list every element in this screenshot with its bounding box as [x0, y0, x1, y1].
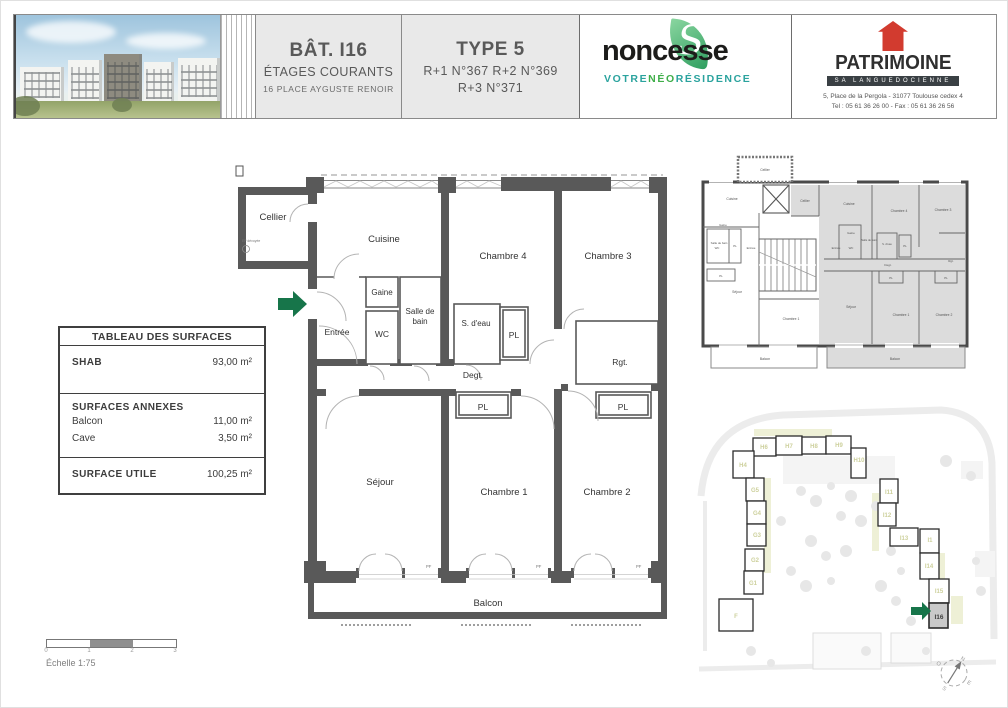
building-address: 16 PLACE AYGUSTE RENOIR — [263, 84, 394, 94]
building-id-cell: BÂT. I16 ÉTAGES COURANTS 16 PLACE AYGUST… — [256, 15, 402, 118]
compass-icon: N E S O — [925, 646, 981, 701]
site-label: H9 — [835, 443, 843, 449]
site-label: I14 — [925, 564, 934, 570]
pf-label: PF — [426, 564, 432, 569]
site-label: G2 — [751, 558, 760, 564]
building-title: BÂT. I16 — [290, 40, 368, 62]
room-label-gaine: Gaine — [371, 288, 393, 297]
site-label: I11 — [885, 490, 894, 496]
site-label: I1 — [927, 538, 933, 544]
shrub — [112, 98, 132, 112]
pf-label: PF — [636, 564, 642, 569]
patrimoine-wordmark: PATRIMOINE — [835, 52, 951, 75]
mini-label: PL — [903, 244, 907, 248]
scale-tick: 2 — [130, 648, 133, 654]
plan-sheet: BÂT. I16 ÉTAGES COURANTS 16 PLACE AYGUST… — [0, 0, 1008, 708]
patrimoine-subtitle: SA LANGUEDOCIENNE — [827, 76, 960, 86]
compass-s: S — [941, 686, 948, 693]
scale-bar: 0 1 2 3 Échelle 1:75 — [46, 639, 186, 668]
building-floors: ÉTAGES COURANTS — [264, 65, 393, 79]
scale-ticks: 0 1 2 3 — [46, 648, 186, 656]
mini-label: Chambre 3 — [935, 208, 952, 212]
mini-label: Entrée — [832, 246, 841, 250]
mini-label: Rgt. — [948, 259, 954, 263]
room-label-entree: Entrée — [324, 327, 349, 337]
scale-label: Échelle 1:75 — [46, 658, 186, 668]
room-label-s-deau: S. d'eau — [461, 319, 490, 328]
house-icon — [878, 21, 908, 51]
room-label-wc: WC — [375, 329, 389, 339]
mini-label: Séjour — [846, 305, 857, 309]
table-row: SURFACE UTILE 100,25 m² — [72, 466, 252, 483]
mini-label: Cuisine — [726, 197, 737, 201]
pf-label: PF — [536, 564, 542, 569]
tagline-residence: RÉSIDENCE — [676, 73, 752, 85]
mini-label: Balcon — [890, 357, 900, 361]
closet-boxes — [366, 277, 658, 418]
room-label-chambre1: Chambre 1 — [481, 487, 528, 498]
site-label: I13 — [900, 536, 909, 542]
room-label-pl: PL — [478, 402, 489, 412]
room-label-degt: Degt. — [463, 370, 483, 380]
building-block — [178, 58, 220, 101]
site-label: G4 — [753, 511, 762, 517]
mini-label: Chambre 1 — [893, 313, 910, 317]
main-floor-plan: EP dévoyée Cellier Cuisine Chambre 4 Cha… — [226, 164, 676, 661]
compass-e: E — [966, 680, 973, 687]
mini-label: WC — [849, 246, 854, 250]
site-label: H8 — [810, 444, 818, 450]
tagline-votre: VOTRE — [604, 73, 648, 85]
cave-label: Cave — [72, 430, 95, 447]
balcon-label: Balcon — [72, 413, 103, 430]
plan-note: EP dévoyée — [242, 239, 260, 243]
mini-label: Cuisine — [843, 202, 854, 206]
building-block — [144, 62, 174, 103]
site-label: G5 — [751, 488, 760, 494]
table-row: Balcon 11,00 m² — [72, 413, 252, 430]
mini-label: Gaine — [719, 223, 727, 227]
annexes-label: SURFACES ANNEXES — [72, 402, 252, 413]
mini-label: Séjour — [732, 290, 743, 294]
room-label-cellier: Cellier — [260, 212, 287, 223]
mini-label: Salle de bain — [861, 238, 877, 242]
mini-label: Balcon — [760, 357, 770, 361]
mini-label: Degt. — [884, 263, 891, 267]
mini-label: PL — [733, 244, 737, 248]
mini-label: Salle de bain — [711, 241, 728, 245]
project-render-image — [14, 15, 220, 118]
room-label-salle-de: Salle de — [406, 307, 435, 316]
mini-label: S. d'eau — [882, 242, 892, 246]
noncesse-logo: S noncesse VOTRENÉORÉSIDENCE — [580, 15, 792, 118]
site-label: H4 — [739, 463, 747, 469]
level-key-plan: Cellier Cuisine Cellier Cuisine Chambre … — [699, 149, 979, 381]
mini-elevator — [763, 185, 789, 213]
table-row: Cave 3,50 m² — [72, 430, 252, 447]
room-label-pl: PL — [618, 402, 629, 412]
address-line: 5, Place de la Pergola - 31077 Toulouse … — [823, 92, 963, 102]
mini-label: WC — [715, 246, 720, 250]
plan-marker — [236, 166, 243, 176]
mini-label: PL — [944, 276, 948, 280]
noncesse-wordmark: noncesse — [602, 35, 728, 68]
mini-stairs — [759, 239, 816, 291]
site-label: I15 — [935, 589, 944, 595]
entrance-arrow-icon — [278, 291, 307, 317]
site-label: H7 — [785, 444, 793, 450]
table-row: SHAB 93,00 m² — [72, 354, 252, 371]
patrimoine-logo: PATRIMOINE SA LANGUEDOCIENNE 5, Place de… — [792, 15, 994, 118]
noncesse-tagline: VOTRENÉORÉSIDENCE — [604, 73, 751, 85]
room-label-sejour: Séjour — [366, 477, 393, 488]
apartment-type-cell: TYPE 5 R+1 N°367 R+2 N°369 R+3 N°371 — [402, 15, 580, 118]
site-label: F — [734, 614, 738, 620]
site-label: G1 — [749, 581, 758, 587]
phone-line: Tel : 05 61 36 26 00 - Fax : 05 61 36 26… — [823, 102, 963, 112]
shab-label: SHAB — [72, 354, 102, 371]
site-label: H10 — [853, 458, 865, 464]
room-label-bain: bain — [412, 317, 427, 326]
site-label: I12 — [883, 513, 892, 519]
utile-label: SURFACE UTILE — [72, 466, 157, 483]
scale-tick: 1 — [87, 648, 90, 654]
mini-label: Chambre 1 — [783, 317, 800, 321]
title-block: BÂT. I16 ÉTAGES COURANTS 16 PLACE AYGUST… — [13, 14, 997, 119]
site-label: G3 — [753, 533, 762, 539]
room-label-balcon: Balcon — [473, 598, 502, 609]
room-label-pl: PL — [509, 330, 520, 340]
mini-label: PL — [889, 276, 893, 280]
type-units-2: R+3 N°371 — [458, 81, 523, 95]
room-label-cuisine: Cuisine — [368, 234, 400, 245]
scale-tick: 0 — [44, 648, 47, 654]
cloud — [26, 21, 116, 43]
room-label-chambre3: Chambre 3 — [585, 251, 632, 262]
site-plan: H6 H7 H8 H9 H10 H4 G5 G4 G3 G2 G1 F I11 … — [691, 401, 1006, 701]
site-label: H6 — [760, 445, 768, 451]
room-label-chambre4: Chambre 4 — [480, 251, 527, 262]
patrimoine-address: 5, Place de la Pergola - 31077 Toulouse … — [823, 92, 963, 112]
room-label-chambre2: Chambre 2 — [584, 487, 631, 498]
scale-tick: 3 — [173, 648, 176, 654]
mini-label: Gaine — [847, 231, 855, 235]
mini-label: Cellier — [800, 199, 810, 203]
cloud — [126, 33, 206, 49]
building-block — [104, 54, 142, 103]
decorative-stripes — [220, 15, 256, 118]
mini-label: Chambre 2 — [936, 313, 953, 317]
tagline-neo: NÉO — [648, 73, 676, 85]
type-units-1: R+1 N°367 R+2 N°369 — [423, 64, 557, 78]
room-label-rgt: Rgt. — [612, 357, 628, 367]
mini-label: Entrée — [747, 246, 756, 250]
mini-label: Chambre 4 — [891, 209, 908, 213]
site-label-highlight: I16 — [934, 614, 943, 621]
mini-label: Cellier — [760, 168, 770, 172]
scale-bar-graphic — [46, 639, 177, 648]
mini-label: PL — [719, 274, 723, 278]
type-title: TYPE 5 — [456, 39, 524, 61]
building-block — [68, 60, 102, 103]
